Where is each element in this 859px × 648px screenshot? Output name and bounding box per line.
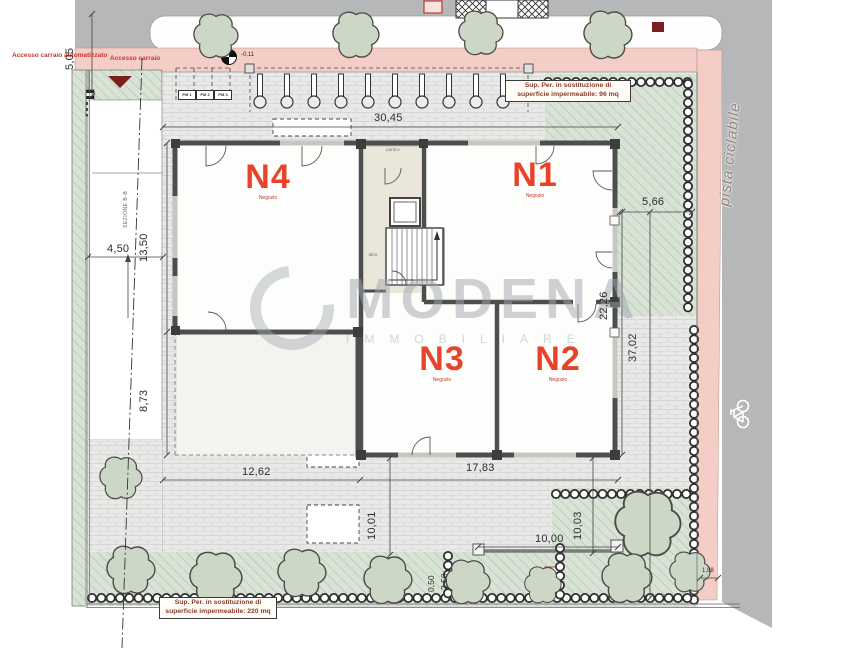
dim-corner: 1,88 xyxy=(702,568,714,574)
unit-n1: N1 Negozio xyxy=(495,158,575,199)
dim-south-right: 10,03 xyxy=(572,511,584,540)
dim-right-inner: 22,26 xyxy=(598,291,610,320)
post-icon xyxy=(524,64,533,73)
terrace xyxy=(175,332,358,455)
parking-stall-pm2: PM 2 xyxy=(196,90,214,100)
dim-street-width: 5,05 xyxy=(64,48,76,70)
unit-n4-type: Negozio xyxy=(228,195,308,201)
access-auto-label: Accesso carraio automatizzato xyxy=(12,52,88,60)
unit-n4: N4 Negozio xyxy=(228,160,308,201)
parking-stall-pm3: PM 3 xyxy=(214,90,232,100)
dim-right-total: 37,02 xyxy=(627,333,639,362)
unit-n1-type: Negozio xyxy=(495,193,575,199)
note-top: Sup. Per. in sostituzione di superficie … xyxy=(505,80,631,102)
dim-drive-width: 4,50 xyxy=(107,243,129,255)
note-bottom: Sup. Per. in sostituzione di superficie … xyxy=(159,597,277,619)
verge-top-left xyxy=(88,70,162,100)
dim-right-setback: 5,66 xyxy=(642,196,664,208)
atrio-label: atrio xyxy=(363,252,383,257)
elevator-icon xyxy=(390,198,420,226)
unit-n3-label: N3 xyxy=(402,342,482,376)
unit-n1-label: N1 xyxy=(495,158,575,192)
dim-hedge-b: 2,50 xyxy=(439,573,449,590)
section-label: SEZIONE B-B xyxy=(123,191,129,228)
driveway xyxy=(88,100,162,440)
portico-label: portico xyxy=(378,147,408,152)
utility-box-icon xyxy=(652,22,664,32)
site-plan-canvas xyxy=(0,0,859,648)
site-plan: MODENA IMMOBILIARE Accesso carraio autom… xyxy=(0,0,859,648)
dim-side-upper: 13,50 xyxy=(138,233,150,262)
dim-top-width: 30,45 xyxy=(374,112,403,124)
parking-stall-pm1: PM 1 xyxy=(178,90,196,100)
level-marker: -0.11 xyxy=(241,52,254,58)
street-marker-icon xyxy=(424,1,442,13)
unit-n2-label: N2 xyxy=(518,342,598,376)
access-label: Accesso carraio xyxy=(110,55,158,63)
dim-fence-length: 10,00 xyxy=(535,533,564,545)
dim-hedge-a: 0,50 xyxy=(426,575,436,592)
unit-n4-label: N4 xyxy=(228,160,308,194)
dim-bottom-right: 17,83 xyxy=(466,462,495,474)
green-strip-left xyxy=(72,70,88,606)
unit-n2: N2 Negozio xyxy=(518,342,598,383)
dim-side-lower: 8,73 xyxy=(138,390,150,412)
stairs-icon xyxy=(386,228,443,285)
post-icon xyxy=(245,64,254,73)
dim-bottom-left: 12,62 xyxy=(242,466,271,478)
unit-n2-type: Negozio xyxy=(518,377,598,383)
dim-south-left: 10,01 xyxy=(366,511,378,540)
unit-n3-type: Negozio xyxy=(402,377,482,383)
unit-n3: N3 Negozio xyxy=(402,342,482,383)
